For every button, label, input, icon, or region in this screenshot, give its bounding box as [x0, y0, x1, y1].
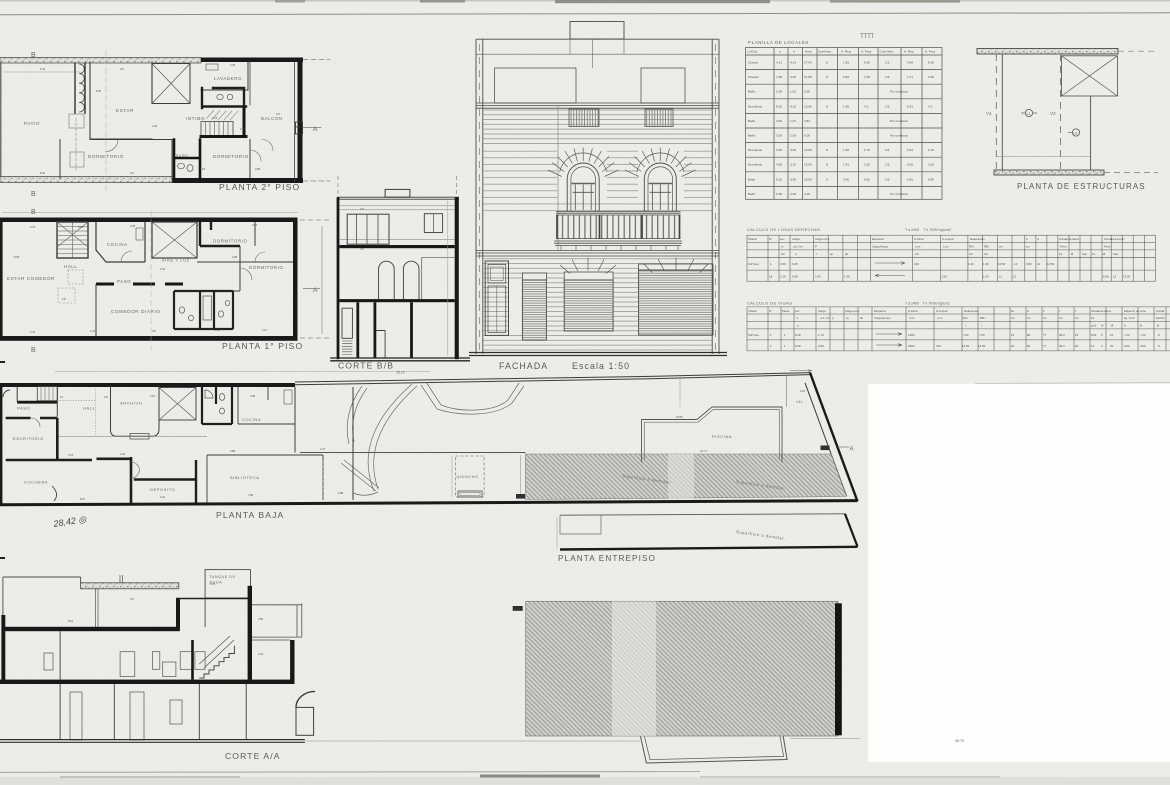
svg-text:lz tramo: lz tramo: [914, 237, 924, 241]
svg-text:12.00: 12.00: [978, 344, 986, 348]
svg-text:8.01: 8.01: [68, 619, 74, 623]
svg-text:3.35: 3.35: [804, 90, 810, 94]
svg-text:2.90: 2.90: [818, 344, 824, 348]
svg-text:Armad.: Armad.: [1156, 309, 1165, 313]
svg-text:6.00: 6.00: [804, 134, 810, 138]
svg-text:S/2°piso: S/2°piso: [748, 262, 759, 266]
svg-text:2.70: 2.70: [928, 148, 934, 152]
svg-text:Esquema: Esquema: [872, 237, 884, 241]
svg-text:80: 80: [1027, 333, 1031, 337]
svg-text:3.00: 3.00: [776, 119, 782, 123]
svg-text:4.50: 4.50: [780, 262, 786, 266]
svg-text:COCINA: COCINA: [242, 417, 261, 422]
svg-text:2.10: 2.10: [780, 275, 786, 279]
svg-text:Armadura tramo: Armadura tramo: [1059, 237, 1080, 241]
svg-text:5.02: 5.02: [776, 177, 782, 181]
svg-text:B: B: [1140, 324, 1142, 328]
svg-text:6.82: 6.82: [864, 177, 870, 181]
svg-text:1.70: 1.70: [818, 333, 824, 337]
svg-text:210: 210: [942, 275, 947, 279]
svg-text:0.70: 0.70: [210, 582, 216, 586]
svg-text:t cm: t cm: [909, 316, 915, 320]
svg-text:4.8: 4.8: [130, 171, 134, 175]
svg-text:lz empotr.: lz empotr.: [936, 309, 948, 313]
svg-text:49.3: 49.3: [1059, 344, 1065, 348]
svg-text:19.58: 19.58: [804, 177, 812, 181]
svg-text:CALCULO DE VIGAS: CALCULO DE VIGAS: [747, 301, 792, 306]
svg-text:15: 15: [1011, 333, 1015, 337]
svg-text:2300: 2300: [908, 344, 915, 348]
svg-text:L8: L8: [1073, 131, 1077, 135]
svg-text:8.91: 8.91: [1091, 333, 1097, 337]
svg-text:4.2: 4.2: [928, 104, 933, 108]
svg-text:Fe: Fe: [1092, 252, 1096, 256]
svg-text:7.22: 7.22: [1140, 333, 1146, 337]
svg-text:Estar: Estar: [748, 177, 755, 181]
svg-text:8.58: 8.58: [1103, 275, 1109, 279]
svg-text:16: 16: [1110, 333, 1114, 337]
svg-text:A: A: [313, 287, 318, 294]
svg-text:77: 77: [1043, 333, 1047, 337]
svg-text:10.65: 10.65: [804, 148, 812, 152]
svg-text:PLANILLA DE LOCALES: PLANILLA DE LOCALES: [748, 40, 809, 45]
svg-text:8.30: 8.30: [795, 344, 801, 348]
svg-text:4.35: 4.35: [230, 63, 236, 67]
svg-text:Baño: Baño: [748, 119, 756, 123]
svg-text:PLANTA 1° PISO: PLANTA 1° PISO: [222, 341, 303, 351]
svg-text:A. Proy.: A. Proy.: [925, 50, 936, 54]
svg-text:Reacciones: Reacciones: [964, 309, 979, 313]
svg-text:ab: ab: [860, 316, 864, 320]
svg-text:8.05: 8.05: [14, 255, 20, 259]
svg-text:4.47: 4.47: [320, 447, 326, 451]
svg-text:HALL: HALL: [83, 406, 96, 411]
svg-text:2.53: 2.53: [843, 75, 849, 79]
svg-text:4.03: 4.03: [790, 75, 796, 79]
svg-text:N°: N°: [1101, 324, 1104, 328]
svg-text:3.8: 3.8: [62, 297, 66, 301]
svg-text:cm2: cm2: [1091, 324, 1097, 328]
svg-text:Baño: Baño: [748, 90, 756, 94]
svg-text:10.50: 10.50: [998, 262, 1006, 266]
svg-text:PLANTA DE ESTRUCTURAS: PLANTA DE ESTRUCTURAS: [1017, 182, 1146, 191]
svg-text:12.00: 12.00: [962, 344, 970, 348]
svg-text:2.62: 2.62: [258, 652, 264, 656]
svg-text:s/2: s/2: [969, 252, 973, 256]
svg-text:4.22: 4.22: [160, 495, 166, 499]
svg-text:BALCON: BALCON: [261, 116, 283, 121]
svg-text:2.05: 2.05: [776, 192, 782, 196]
svg-text:4.08: 4.08: [250, 394, 256, 398]
svg-text:Carga: Carga: [792, 237, 800, 241]
svg-text:Por conducto: Por conducto: [890, 119, 909, 123]
svg-text:Fe/m.: Fe/m.: [1060, 245, 1067, 249]
svg-text:Luz: Luz: [795, 309, 800, 313]
svg-text:20: 20: [1110, 344, 1114, 348]
svg-text:8: 8: [826, 75, 828, 79]
svg-text:8.45: 8.45: [96, 89, 102, 93]
svg-text:2.80: 2.80: [258, 617, 264, 621]
svg-text:1.93: 1.93: [843, 61, 849, 65]
svg-text:L1: L1: [1027, 112, 1031, 116]
svg-text:1.51: 1.51: [160, 267, 166, 271]
svg-text:Fe: Fe: [1091, 316, 1095, 320]
svg-text:Dormitorio: Dormitorio: [748, 148, 763, 152]
svg-text:1.90: 1.90: [844, 275, 850, 279]
svg-text:0.84: 0.84: [907, 61, 913, 65]
svg-text:Luz: Luz: [780, 237, 785, 241]
svg-text:8: 8: [826, 148, 828, 152]
svg-text:1.63: 1.63: [983, 275, 989, 279]
svg-text:Baño: Baño: [748, 192, 756, 196]
svg-text:PASO: PASO: [17, 406, 30, 411]
svg-text:Armadura sup-iz: Armadura sup-iz: [1104, 237, 1125, 241]
svg-text:kg / cm2: kg / cm2: [1124, 316, 1135, 320]
svg-text:2.8: 2.8: [360, 207, 364, 211]
svg-text:Escala 1:50: Escala 1:50: [572, 361, 630, 371]
svg-text:3.25: 3.25: [928, 163, 934, 167]
svg-text:Esquema: Esquema: [874, 309, 886, 313]
svg-text:PISCINA: PISCINA: [712, 434, 732, 439]
svg-text:13.50: 13.50: [1123, 275, 1131, 279]
svg-text:t cm: t cm: [943, 245, 949, 249]
svg-text:0.81: 0.81: [907, 177, 913, 181]
svg-text:ESTAR: ESTAR: [116, 108, 134, 113]
svg-text:210: 210: [936, 344, 941, 348]
svg-text:9.00: 9.00: [1140, 344, 1146, 348]
svg-text:Sep.: Sep.: [1113, 252, 1119, 256]
svg-text:3.00: 3.00: [790, 148, 796, 152]
svg-text:8.41: 8.41: [40, 171, 46, 175]
svg-text:Cargo/Apoyo: Cargo/Apoyo: [872, 245, 889, 249]
svg-text:3.50: 3.50: [928, 75, 934, 79]
svg-text:Dormitorio: Dormitorio: [748, 104, 763, 108]
svg-text:Carga conc.: Carga conc.: [815, 237, 830, 241]
svg-text:A: A: [313, 126, 318, 133]
svg-text:ao: ao: [830, 252, 834, 256]
svg-text:2.85: 2.85: [252, 223, 258, 227]
svg-text:Privado: Privado: [748, 75, 759, 79]
svg-text:Cargo/Apoyo: Cargo/Apoyo: [874, 316, 891, 320]
svg-text:AIRE Y LUZ: AIRE Y LUZ: [162, 258, 190, 263]
svg-text:4.12: 4.12: [262, 328, 268, 332]
svg-text:4.40: 4.40: [152, 124, 158, 128]
svg-text:8: 8: [826, 177, 828, 181]
svg-text:T a 2400 T h 70/90 kg/cm2: T a 2400 T h 70/90 kg/cm2: [905, 228, 951, 232]
svg-text:Baño: Baño: [748, 134, 756, 138]
svg-text:1480: 1480: [908, 333, 915, 337]
svg-text:7.86: 7.86: [248, 493, 254, 497]
svg-text:ARCHIVO: ARCHIVO: [120, 401, 142, 406]
svg-text:49.70: 49.70: [955, 739, 964, 743]
svg-text:Dormitorio: Dormitorio: [748, 163, 763, 167]
svg-text:5.6: 5.6: [130, 597, 134, 601]
svg-text:so: so: [846, 316, 849, 320]
svg-text:Fe/m.: Fe/m.: [1104, 245, 1111, 249]
svg-text:V2: V2: [1050, 111, 1056, 116]
svg-text:HALL: HALL: [64, 264, 77, 269]
svg-text:P: P: [815, 245, 817, 249]
svg-text:14: 14: [1091, 344, 1095, 348]
svg-text:2.00: 2.00: [790, 134, 796, 138]
svg-text:2.65: 2.65: [130, 224, 136, 228]
svg-text:PLANTA BAJA: PLANTA BAJA: [216, 510, 284, 520]
svg-text:ESCRITORIO: ESCRITORIO: [13, 436, 44, 441]
svg-text:2.1: 2.1: [60, 395, 64, 399]
svg-text:a: a: [779, 50, 781, 54]
svg-text:12: 12: [1014, 262, 1018, 266]
svg-text:2.00: 2.00: [790, 192, 796, 196]
svg-text:1.30: 1.30: [968, 262, 974, 266]
svg-text:0.30: 0.30: [815, 275, 821, 279]
svg-text:4.98: 4.98: [776, 163, 782, 167]
svg-text:4.12: 4.12: [790, 104, 796, 108]
svg-text:6.60: 6.60: [928, 177, 934, 181]
svg-text:TANQUE DE: TANQUE DE: [210, 575, 236, 579]
svg-text:2.32: 2.32: [864, 163, 870, 167]
svg-text:2.45: 2.45: [843, 177, 849, 181]
svg-text:0.45: 0.45: [792, 262, 798, 266]
svg-text:Fe: Fe: [1059, 252, 1063, 256]
svg-text:Cocina: Cocina: [748, 61, 758, 65]
svg-text:Por conducto: Por conducto: [890, 134, 909, 138]
svg-text:Por conducto: Por conducto: [890, 90, 909, 94]
svg-text:1.55: 1.55: [843, 104, 849, 108]
svg-text:7.00: 7.00: [864, 75, 870, 79]
svg-text:56.16: 56.16: [397, 371, 405, 375]
svg-text:12: 12: [1013, 275, 1017, 279]
svg-text:7.89: 7.89: [776, 75, 782, 79]
svg-text:s/2: s/2: [984, 252, 988, 256]
svg-text:2.15: 2.15: [150, 394, 156, 398]
svg-text:12.50: 12.50: [1047, 262, 1055, 266]
svg-text:u.d. t/m.: u.d. t/m.: [793, 245, 803, 249]
svg-text:Carga: Carga: [818, 309, 826, 313]
svg-text:N°: N°: [769, 237, 772, 241]
svg-text:17.43: 17.43: [804, 61, 812, 65]
svg-text:3.8: 3.8: [360, 247, 364, 251]
svg-text:b: b: [793, 50, 795, 54]
svg-text:2.08: 2.08: [776, 90, 782, 94]
svg-text:7.50: 7.50: [979, 333, 985, 337]
svg-text:1/3: 1/3: [885, 177, 890, 181]
svg-text:COMEDOR DIARIO: COMEDOR DIARIO: [111, 309, 161, 314]
svg-text:6.00: 6.00: [928, 61, 934, 65]
svg-text:1/3: 1/3: [885, 148, 890, 152]
svg-text:DORMITORIO: DORMITORIO: [213, 239, 247, 244]
svg-text:1.71: 1.71: [907, 75, 913, 79]
svg-text:2.8: 2.8: [276, 112, 280, 116]
svg-text:80: 80: [1027, 344, 1031, 348]
svg-text:B: B: [31, 191, 36, 198]
svg-text:ESTAR COMEDOR: ESTAR COMEDOR: [7, 276, 55, 281]
svg-text:49.3: 49.3: [1059, 333, 1065, 337]
svg-text:DORMITORIO: DORMITORIO: [213, 154, 249, 159]
svg-text:11: 11: [999, 275, 1002, 279]
svg-text:Area.: Area.: [805, 50, 813, 54]
svg-text:C13: C13: [514, 607, 520, 611]
svg-text:PASO: PASO: [117, 279, 131, 284]
svg-text:8: 8: [826, 104, 828, 108]
svg-text:4.14: 4.14: [790, 61, 796, 65]
svg-text:2.88: 2.88: [230, 449, 236, 453]
svg-text:0.78: 0.78: [212, 116, 218, 120]
svg-text:C13: C13: [517, 495, 523, 499]
svg-text:LOCAL: LOCAL: [748, 50, 758, 54]
svg-text:BIBLIOTECA: BIBLIOTECA: [230, 475, 260, 480]
svg-text:1.15: 1.15: [196, 223, 202, 227]
svg-text:A. Req.: A. Req.: [841, 50, 851, 54]
svg-text:lz empotr.: lz empotr.: [942, 237, 954, 241]
svg-text:s/2: s/2: [915, 252, 919, 256]
svg-text:Planta: Planta: [749, 309, 757, 313]
svg-text:10: 10: [1037, 262, 1041, 266]
svg-text:Armadura tramo: Armadura tramo: [1091, 309, 1112, 313]
svg-text:0.63: 0.63: [907, 163, 913, 167]
svg-text:3.15: 3.15: [790, 163, 796, 167]
svg-text:6.41: 6.41: [40, 67, 46, 71]
svg-text:2.70: 2.70: [864, 148, 870, 152]
svg-text:3.81: 3.81: [804, 119, 810, 123]
svg-text:RB t: RB t: [984, 245, 990, 249]
svg-text:9.00: 9.00: [1124, 344, 1130, 348]
svg-text:BAÑO: BAÑO: [176, 153, 189, 158]
svg-text:PLANTA 2° PISO: PLANTA 2° PISO: [219, 182, 300, 192]
svg-text:V1: V1: [986, 111, 992, 116]
svg-text:4.2: 4.2: [864, 104, 869, 108]
svg-text:8: 8: [826, 163, 828, 167]
svg-text:Reacciones: Reacciones: [970, 237, 985, 241]
svg-text:A: A: [1124, 324, 1126, 328]
svg-text:ab: ab: [845, 252, 849, 256]
svg-text:2.42: 2.42: [90, 329, 96, 333]
svg-text:L8: L8: [769, 275, 773, 279]
svg-text:1/3: 1/3: [885, 104, 890, 108]
svg-text:Carga conc.: Carga conc.: [845, 309, 860, 313]
svg-text:1.30: 1.30: [983, 262, 989, 266]
svg-text:1/3: 1/3: [885, 163, 890, 167]
svg-text:E12: E12: [822, 446, 828, 450]
svg-text:Por conducto: Por conducto: [890, 192, 909, 196]
svg-text:Pante: Pante: [782, 309, 790, 313]
svg-text:2.75: 2.75: [30, 330, 36, 334]
svg-text:8.07: 8.07: [80, 497, 86, 501]
svg-text:DORMITORIO: DORMITORIO: [249, 265, 283, 270]
svg-text:A: A: [850, 447, 854, 453]
svg-text:3.00: 3.00: [776, 134, 782, 138]
svg-text:RA t: RA t: [969, 245, 975, 249]
svg-text:N°: N°: [769, 309, 772, 313]
svg-text:CORTE B/B: CORTE B/B: [338, 361, 394, 371]
svg-text:8.30: 8.30: [795, 333, 801, 337]
svg-text:2.32: 2.32: [240, 127, 246, 131]
svg-text:130: 130: [914, 262, 919, 266]
svg-text:24.05: 24.05: [676, 415, 683, 419]
svg-text:7.22: 7.22: [1124, 333, 1130, 337]
svg-text:LAVADERO: LAVADERO: [214, 76, 242, 81]
svg-text:1.27: 1.27: [790, 119, 796, 123]
svg-text:77: 77: [1043, 344, 1047, 348]
svg-text:4.8: 4.8: [104, 395, 108, 399]
svg-text:CORTE A/A: CORTE A/A: [225, 751, 281, 761]
svg-text:8: 8: [826, 61, 828, 65]
svg-text:4.21: 4.21: [776, 61, 782, 65]
svg-text:2.78: 2.78: [68, 453, 74, 457]
svg-text:1.91: 1.91: [843, 163, 849, 167]
svg-text:lz tramo: lz tramo: [908, 309, 918, 313]
svg-text:2.08: 2.08: [215, 328, 221, 332]
svg-text:15.30: 15.30: [804, 163, 812, 167]
svg-text:2.88: 2.88: [255, 167, 261, 171]
svg-text:1.61: 1.61: [790, 90, 796, 94]
svg-text:Coef.Ilum.: Coef.Ilum.: [818, 50, 832, 54]
svg-text:t cm: t cm: [937, 316, 943, 320]
svg-text:1.93: 1.93: [843, 148, 849, 152]
svg-text:20: 20: [1075, 344, 1079, 348]
svg-text:2.88: 2.88: [338, 491, 344, 495]
svg-text:15: 15: [1075, 333, 1079, 337]
svg-text:20: 20: [1011, 344, 1015, 348]
svg-text:FACHADA: FACHADA: [499, 361, 548, 371]
svg-text:s/2: s/2: [781, 252, 785, 256]
svg-text:3.8: 3.8: [152, 329, 156, 333]
svg-text:2.75: 2.75: [30, 225, 36, 229]
svg-text:5.18: 5.18: [78, 225, 84, 229]
svg-text:COCINA: COCINA: [107, 242, 128, 247]
svg-text:7.52: 7.52: [963, 333, 969, 337]
svg-text:2.42: 2.42: [120, 452, 126, 456]
svg-text:8.10: 8.10: [776, 104, 782, 108]
svg-text:4.41: 4.41: [796, 400, 802, 404]
svg-text:B: B: [31, 209, 36, 216]
svg-text:0.40: 0.40: [792, 275, 798, 279]
svg-text:8.21: 8.21: [296, 125, 302, 129]
svg-text:1/3: 1/3: [885, 61, 890, 65]
svg-text:1/3: 1/3: [885, 75, 890, 79]
svg-text:3.90: 3.90: [790, 177, 796, 181]
svg-text:13.45: 13.45: [804, 104, 812, 108]
svg-text:4.10: 4.10: [804, 192, 810, 196]
svg-text:DEPOSITO: DEPOSITO: [150, 487, 175, 492]
svg-text:Estribo: Estribo: [1156, 316, 1165, 320]
svg-text:B: B: [31, 347, 36, 354]
svg-text:2.8: 2.8: [120, 67, 124, 71]
svg-text:Planta: Planta: [749, 237, 757, 241]
svg-text:QUINCHO: QUINCHO: [457, 475, 479, 479]
svg-text:0.51: 0.51: [907, 104, 913, 108]
svg-text:t cm: t cm: [915, 245, 921, 249]
svg-text:A. Req.: A. Req.: [904, 50, 914, 54]
svg-text:Esfuerzo de corte: Esfuerzo de corte: [1124, 309, 1146, 313]
svg-text:5.80: 5.80: [1026, 262, 1032, 266]
svg-text:u.d. t/m.: u.d. t/m.: [820, 316, 830, 320]
svg-text:bo: bo: [1011, 309, 1015, 313]
svg-text:12: 12: [1113, 275, 1117, 279]
svg-text:PATIO: PATIO: [24, 121, 40, 126]
svg-text:INTIMO: INTIMO: [186, 116, 205, 121]
svg-text:T a 2400 T h 70/90 kg/cm2: T a 2400 T h 70/90 kg/cm2: [905, 302, 950, 306]
svg-text:Coef.Vent.: Coef.Vent.: [880, 50, 895, 54]
svg-text:22.17: 22.17: [700, 449, 708, 453]
svg-text:A. Proy.: A. Proy.: [861, 50, 872, 54]
svg-text:Sep: Sep: [1082, 252, 1087, 256]
svg-text:S/2°piso: S/2°piso: [748, 333, 759, 337]
svg-text:COCHERA: COCHERA: [24, 480, 48, 485]
svg-text:PLANTA ENTREPISO: PLANTA ENTREPISO: [558, 554, 656, 563]
svg-text:RA t: RA t: [963, 316, 969, 320]
svg-text:6.00: 6.00: [864, 61, 870, 65]
svg-text:RB t: RB t: [980, 316, 986, 320]
